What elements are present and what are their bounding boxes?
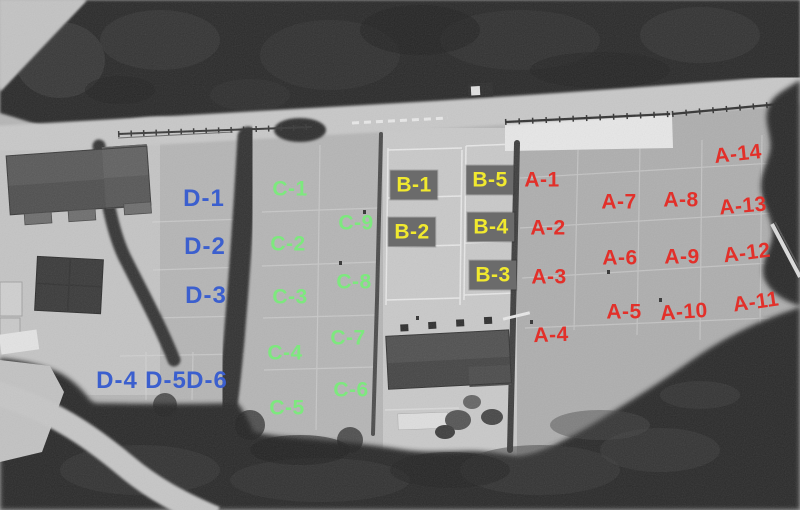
- zone-label-d-1: D-1: [183, 187, 225, 211]
- zone-label-d-6: D-6: [186, 369, 228, 393]
- zone-label-a-12: A-12: [722, 240, 772, 267]
- zone-label-c-3: C-3: [272, 287, 307, 308]
- zone-label-a-1: A-1: [524, 170, 559, 191]
- zone-label-c-9: C-9: [338, 213, 373, 234]
- zone-label-a-13: A-13: [718, 193, 767, 218]
- zone-label-b-3: B-3: [469, 261, 516, 290]
- zone-label-c-4: C-4: [267, 343, 302, 364]
- zone-label-a-9: A-9: [664, 247, 699, 268]
- zone-label-a-7: A-7: [601, 192, 636, 213]
- zone-label-c-8: C-8: [336, 272, 371, 293]
- zone-label-c-2: C-2: [270, 234, 305, 255]
- zone-label-a-14: A-14: [713, 141, 762, 167]
- zone-label-b-4: B-4: [467, 213, 514, 242]
- zone-label-d-2: D-2: [184, 235, 226, 259]
- zone-labels-layer: A-1A-2A-3A-4A-5A-6A-7A-8A-9A-10A-11A-12A…: [0, 0, 800, 510]
- zone-label-b-2: B-2: [388, 218, 435, 247]
- zone-label-d-3: D-3: [185, 284, 227, 308]
- aerial-photo: A-1A-2A-3A-4A-5A-6A-7A-8A-9A-10A-11A-12A…: [0, 0, 800, 510]
- zone-label-a-2: A-2: [530, 218, 565, 239]
- zone-label-b-5: B-5: [466, 166, 513, 195]
- zone-label-a-8: A-8: [663, 190, 698, 211]
- zone-label-d-4: D-4: [96, 369, 138, 393]
- zone-label-c-1: C-1: [272, 179, 307, 200]
- zone-label-b-1: B-1: [390, 171, 437, 200]
- zone-label-a-11: A-11: [732, 288, 781, 315]
- zone-label-a-6: A-6: [602, 248, 637, 269]
- zone-label-a-3: A-3: [531, 267, 566, 288]
- zone-label-a-4: A-4: [533, 324, 569, 346]
- zone-label-c-6: C-6: [333, 380, 368, 401]
- zone-label-c-7: C-7: [330, 328, 365, 349]
- zone-label-a-10: A-10: [660, 300, 709, 324]
- zone-label-c-5: C-5: [269, 398, 304, 419]
- zone-label-d-5: D-5: [145, 369, 187, 393]
- zone-label-a-5: A-5: [606, 302, 641, 323]
